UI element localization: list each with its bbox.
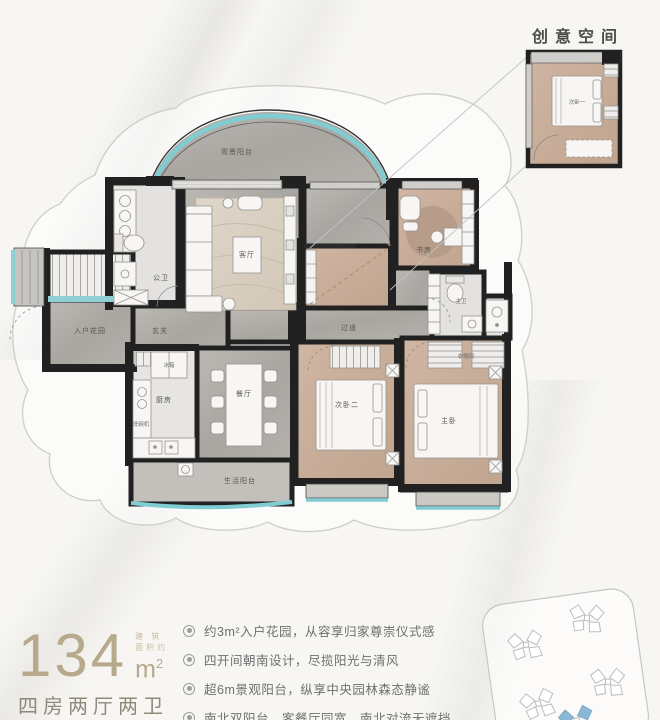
label-public-bath: 公卫 — [153, 274, 169, 282]
label-fridge: 冰箱 — [163, 361, 175, 369]
feature-text: 超6m景观阳台，纵享中央园林森态静谧 — [204, 679, 430, 698]
label-master-bedroom: 主卧 — [441, 416, 457, 425]
area-note-line2: 面积约 — [135, 643, 168, 654]
feature-text: 约3m²入户花园，从容享归家尊崇仪式感 — [204, 621, 435, 640]
label-entry-garden: 入户花园 — [74, 326, 106, 335]
feature-item: 约3m²入户花园，从容享归家尊崇仪式感 — [183, 621, 451, 640]
site-plan — [480, 586, 651, 720]
label-corridor: 过道 — [341, 323, 357, 332]
feature-text: 南北双阳台，客餐厅同宽，南北对流无遮挡 — [204, 708, 451, 720]
inset-title: 创意空间 — [531, 27, 624, 46]
feature-text: 四开间朝南设计，尽揽阳光与清风 — [204, 650, 399, 669]
feature-item: 南北双阳台，客餐厅同宽，南北对流无遮挡 — [183, 708, 451, 720]
area-value: 134 — [18, 628, 127, 683]
room-flex-strip — [304, 186, 392, 246]
label-master-bath: 主卫 — [455, 297, 467, 305]
label-bedroom-two: 次卧二 — [335, 400, 359, 409]
label-living: 客厅 — [239, 250, 255, 259]
room-service-balcony — [131, 460, 292, 504]
creative-space-inset: 创意空间 次卧一 — [526, 27, 624, 166]
label-foyer: 玄关 — [152, 326, 168, 335]
bullet-ring-icon — [183, 654, 195, 666]
label-dining: 餐厅 — [236, 389, 252, 398]
label-wardrobe: 衣帽间 — [458, 352, 475, 360]
feature-list: 约3m²入户花园，从容享归家尊崇仪式感 四开间朝南设计，尽揽阳光与清风 超6m景… — [183, 621, 451, 720]
inset-room-label: 次卧一 — [569, 98, 586, 106]
dining-furniture — [211, 364, 277, 446]
layout-label: 四房两厅两卫 — [18, 690, 168, 719]
service-balcony-items — [178, 463, 193, 476]
area-note-line1: 建 筑 — [135, 632, 168, 643]
label-dishwasher: 洗碗机 — [133, 420, 150, 428]
area-summary: 134 建 筑 面积约 m2 四房两厅两卫 — [18, 628, 168, 719]
bullet-ring-icon — [183, 683, 195, 695]
bullet-ring-icon — [183, 712, 195, 720]
floorplan-svg: 观景阳台 — [0, 0, 660, 720]
bullet-ring-icon — [183, 625, 195, 637]
label-study: 书房 — [416, 245, 432, 254]
feature-item: 四开间朝南设计，尽揽阳光与清风 — [183, 650, 451, 669]
label-service-balcony: 生活阳台 — [224, 476, 256, 485]
floorplan-page: 观景阳台 — [0, 0, 660, 720]
feature-item: 超6m景观阳台，纵享中央园林森态静谧 — [183, 679, 451, 698]
area-unit: m2 — [135, 657, 168, 682]
label-kitchen: 厨房 — [156, 395, 172, 404]
label-viewing-balcony: 观景阳台 — [221, 147, 253, 156]
